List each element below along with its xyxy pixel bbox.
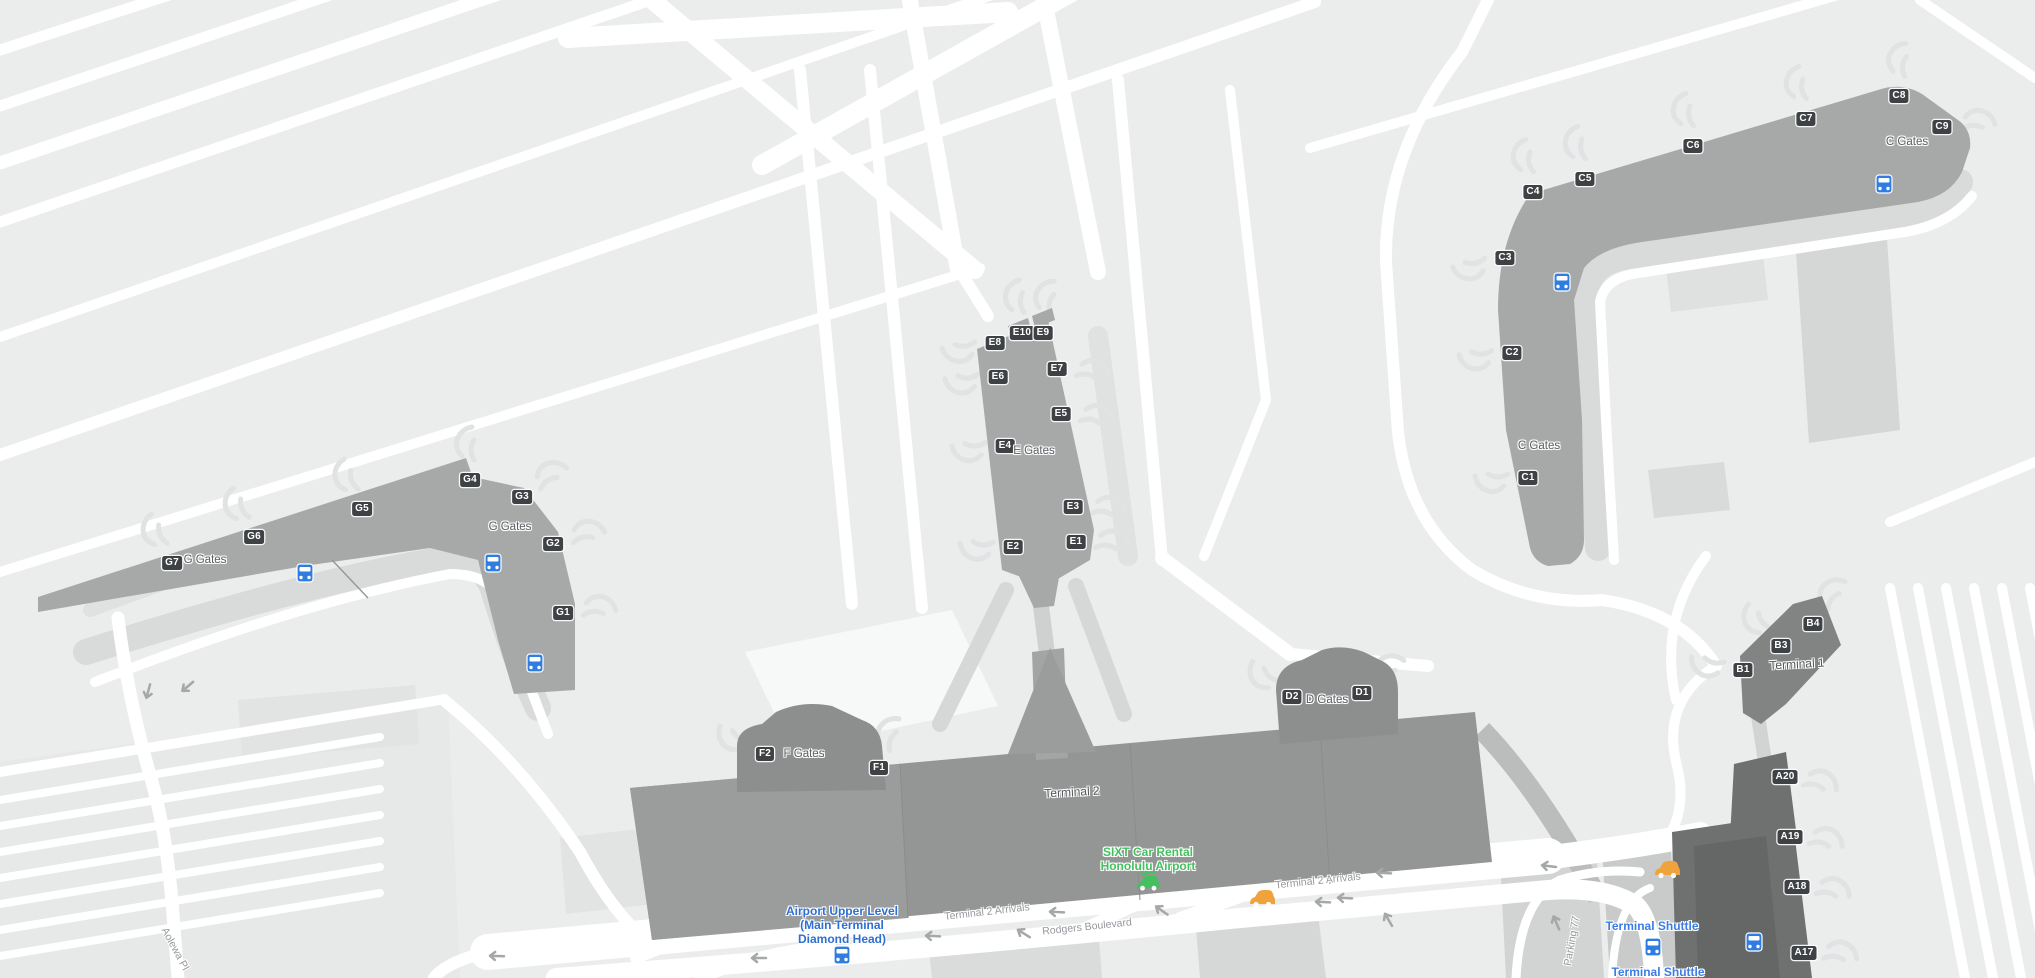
bus-stop-icon[interactable] [527,654,543,672]
bus-stop-icon[interactable] [297,564,313,582]
bus-stop-icon[interactable] [834,946,850,964]
bus-stop-icon[interactable] [1746,933,1762,951]
bus-stop-icon[interactable] [1876,175,1892,193]
bus-stop-icon[interactable] [1645,938,1661,956]
bus-stop-icon[interactable] [485,554,501,572]
airport-map[interactable]: G7G6G5G4G3G2G1E8E10E9E7E6E5E4E3E2E1C4C5C… [0,0,2035,978]
bus-stop-icon[interactable] [1554,273,1570,291]
map-canvas [0,0,2035,978]
